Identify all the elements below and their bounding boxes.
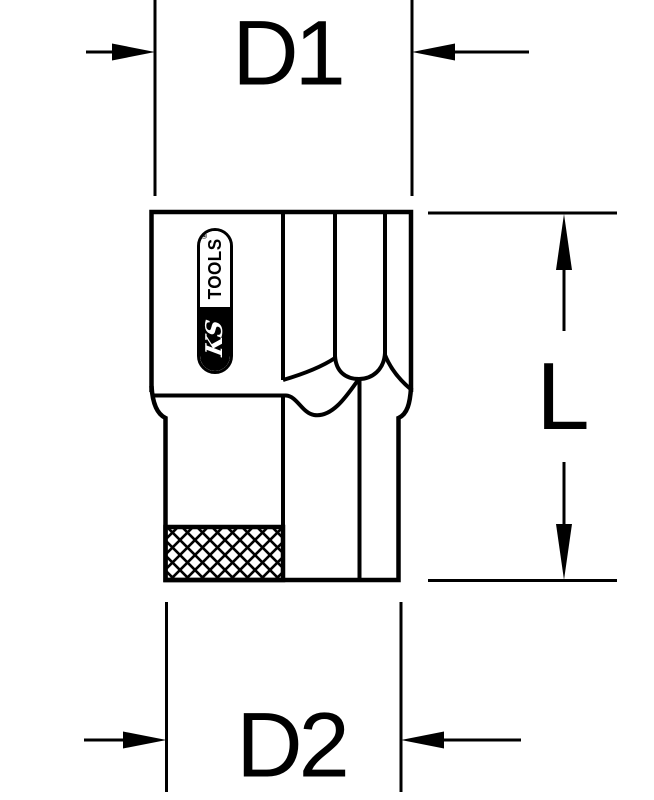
logo-ks-text: KS (201, 319, 228, 358)
logo-tools-text: TOOLS (205, 238, 226, 299)
d1-arrow-left-icon (412, 44, 455, 61)
l-arrow-down-icon (556, 524, 572, 580)
hex-facet-bottom-arc (283, 358, 335, 380)
hex-facet-right-curve (385, 355, 411, 389)
knurl-band (166, 527, 284, 580)
registered-trademark-icon: ® (200, 233, 209, 239)
dimension-label-d1: D1 (232, 2, 342, 107)
hex-facet-u-curve (335, 353, 385, 379)
socket-flange-scoop-line (152, 378, 360, 415)
technical-drawing-canvas: D1 D2 L KS TOOLS ® (0, 0, 654, 800)
dimension-label-d2: D2 (236, 694, 346, 799)
socket-drawing (152, 212, 412, 580)
logo-tools-section: TOOLS ® (200, 231, 230, 307)
l-arrow-up-icon (556, 214, 572, 270)
ks-tools-logo: KS TOOLS ® (197, 228, 233, 374)
d1-arrow-right-icon (112, 44, 155, 61)
logo-ks-section: KS (200, 307, 230, 371)
d2-arrow-left-icon (401, 732, 444, 749)
d2-arrow-right-icon (123, 732, 167, 749)
dimension-label-l: L (536, 342, 589, 452)
